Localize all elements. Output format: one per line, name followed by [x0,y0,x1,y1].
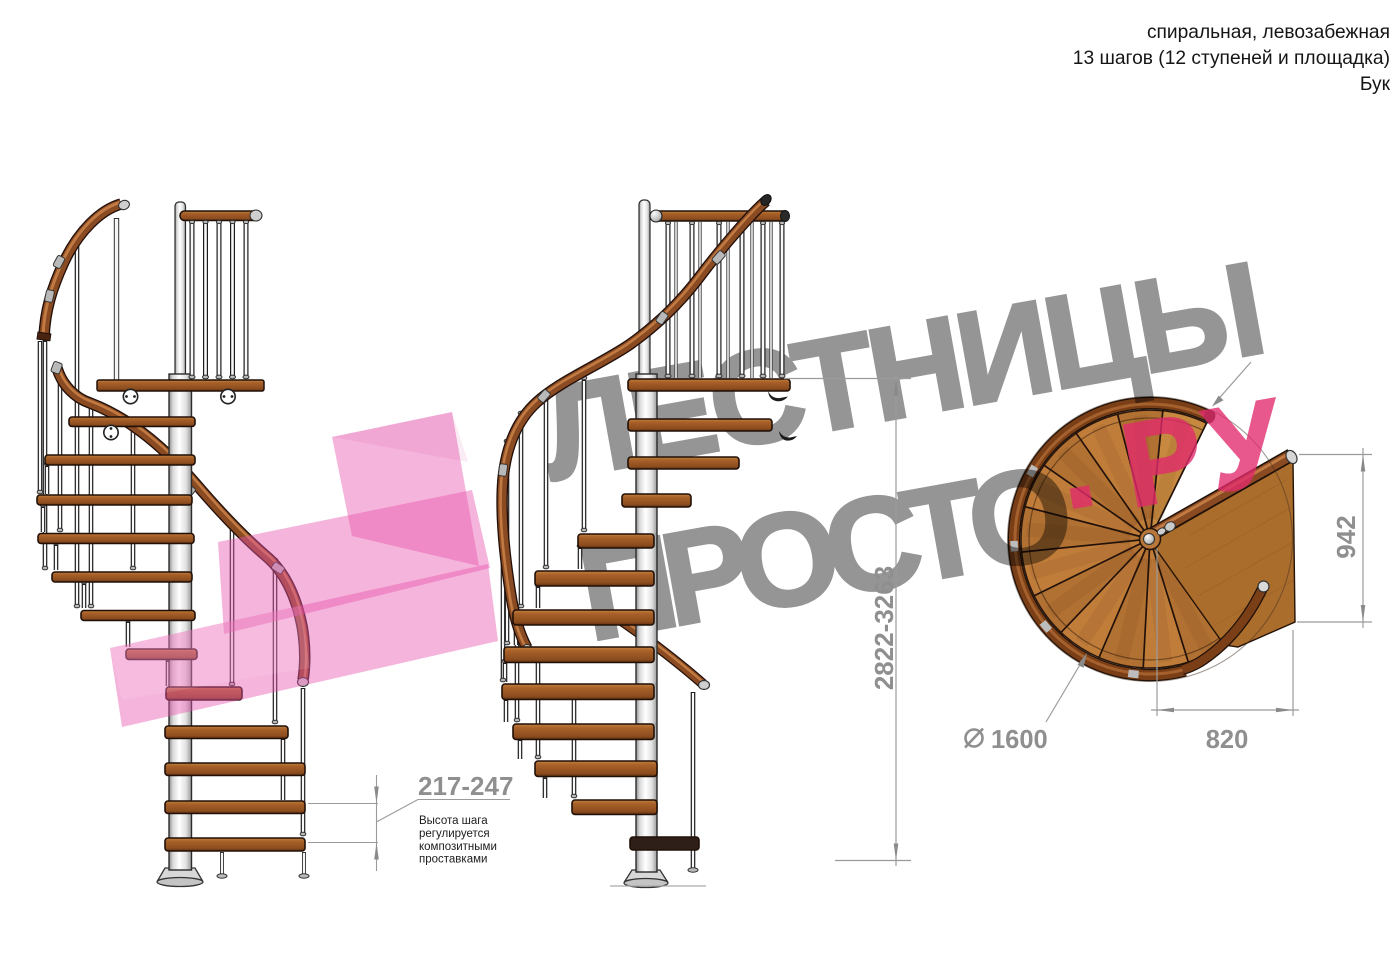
svg-text:Высота шага: Высота шага [419,815,488,827]
svg-text:820: 820 [1206,726,1249,754]
svg-text:Бук: Бук [1360,74,1391,95]
svg-text:спиральная, левозабежная: спиральная, левозабежная [1147,22,1390,43]
svg-text:проставками: проставками [419,854,487,866]
svg-text:композитными: композитными [419,841,497,853]
svg-text:1600: 1600 [991,726,1048,754]
svg-text:2822-3263: 2822-3263 [869,566,899,690]
svg-text:217-247: 217-247 [418,771,513,801]
svg-text:13 шагов (12 ступеней и площад: 13 шагов (12 ступеней и площадка) [1073,48,1390,69]
svg-text:регулируется: регулируется [419,828,490,840]
svg-text:942: 942 [1331,515,1361,558]
